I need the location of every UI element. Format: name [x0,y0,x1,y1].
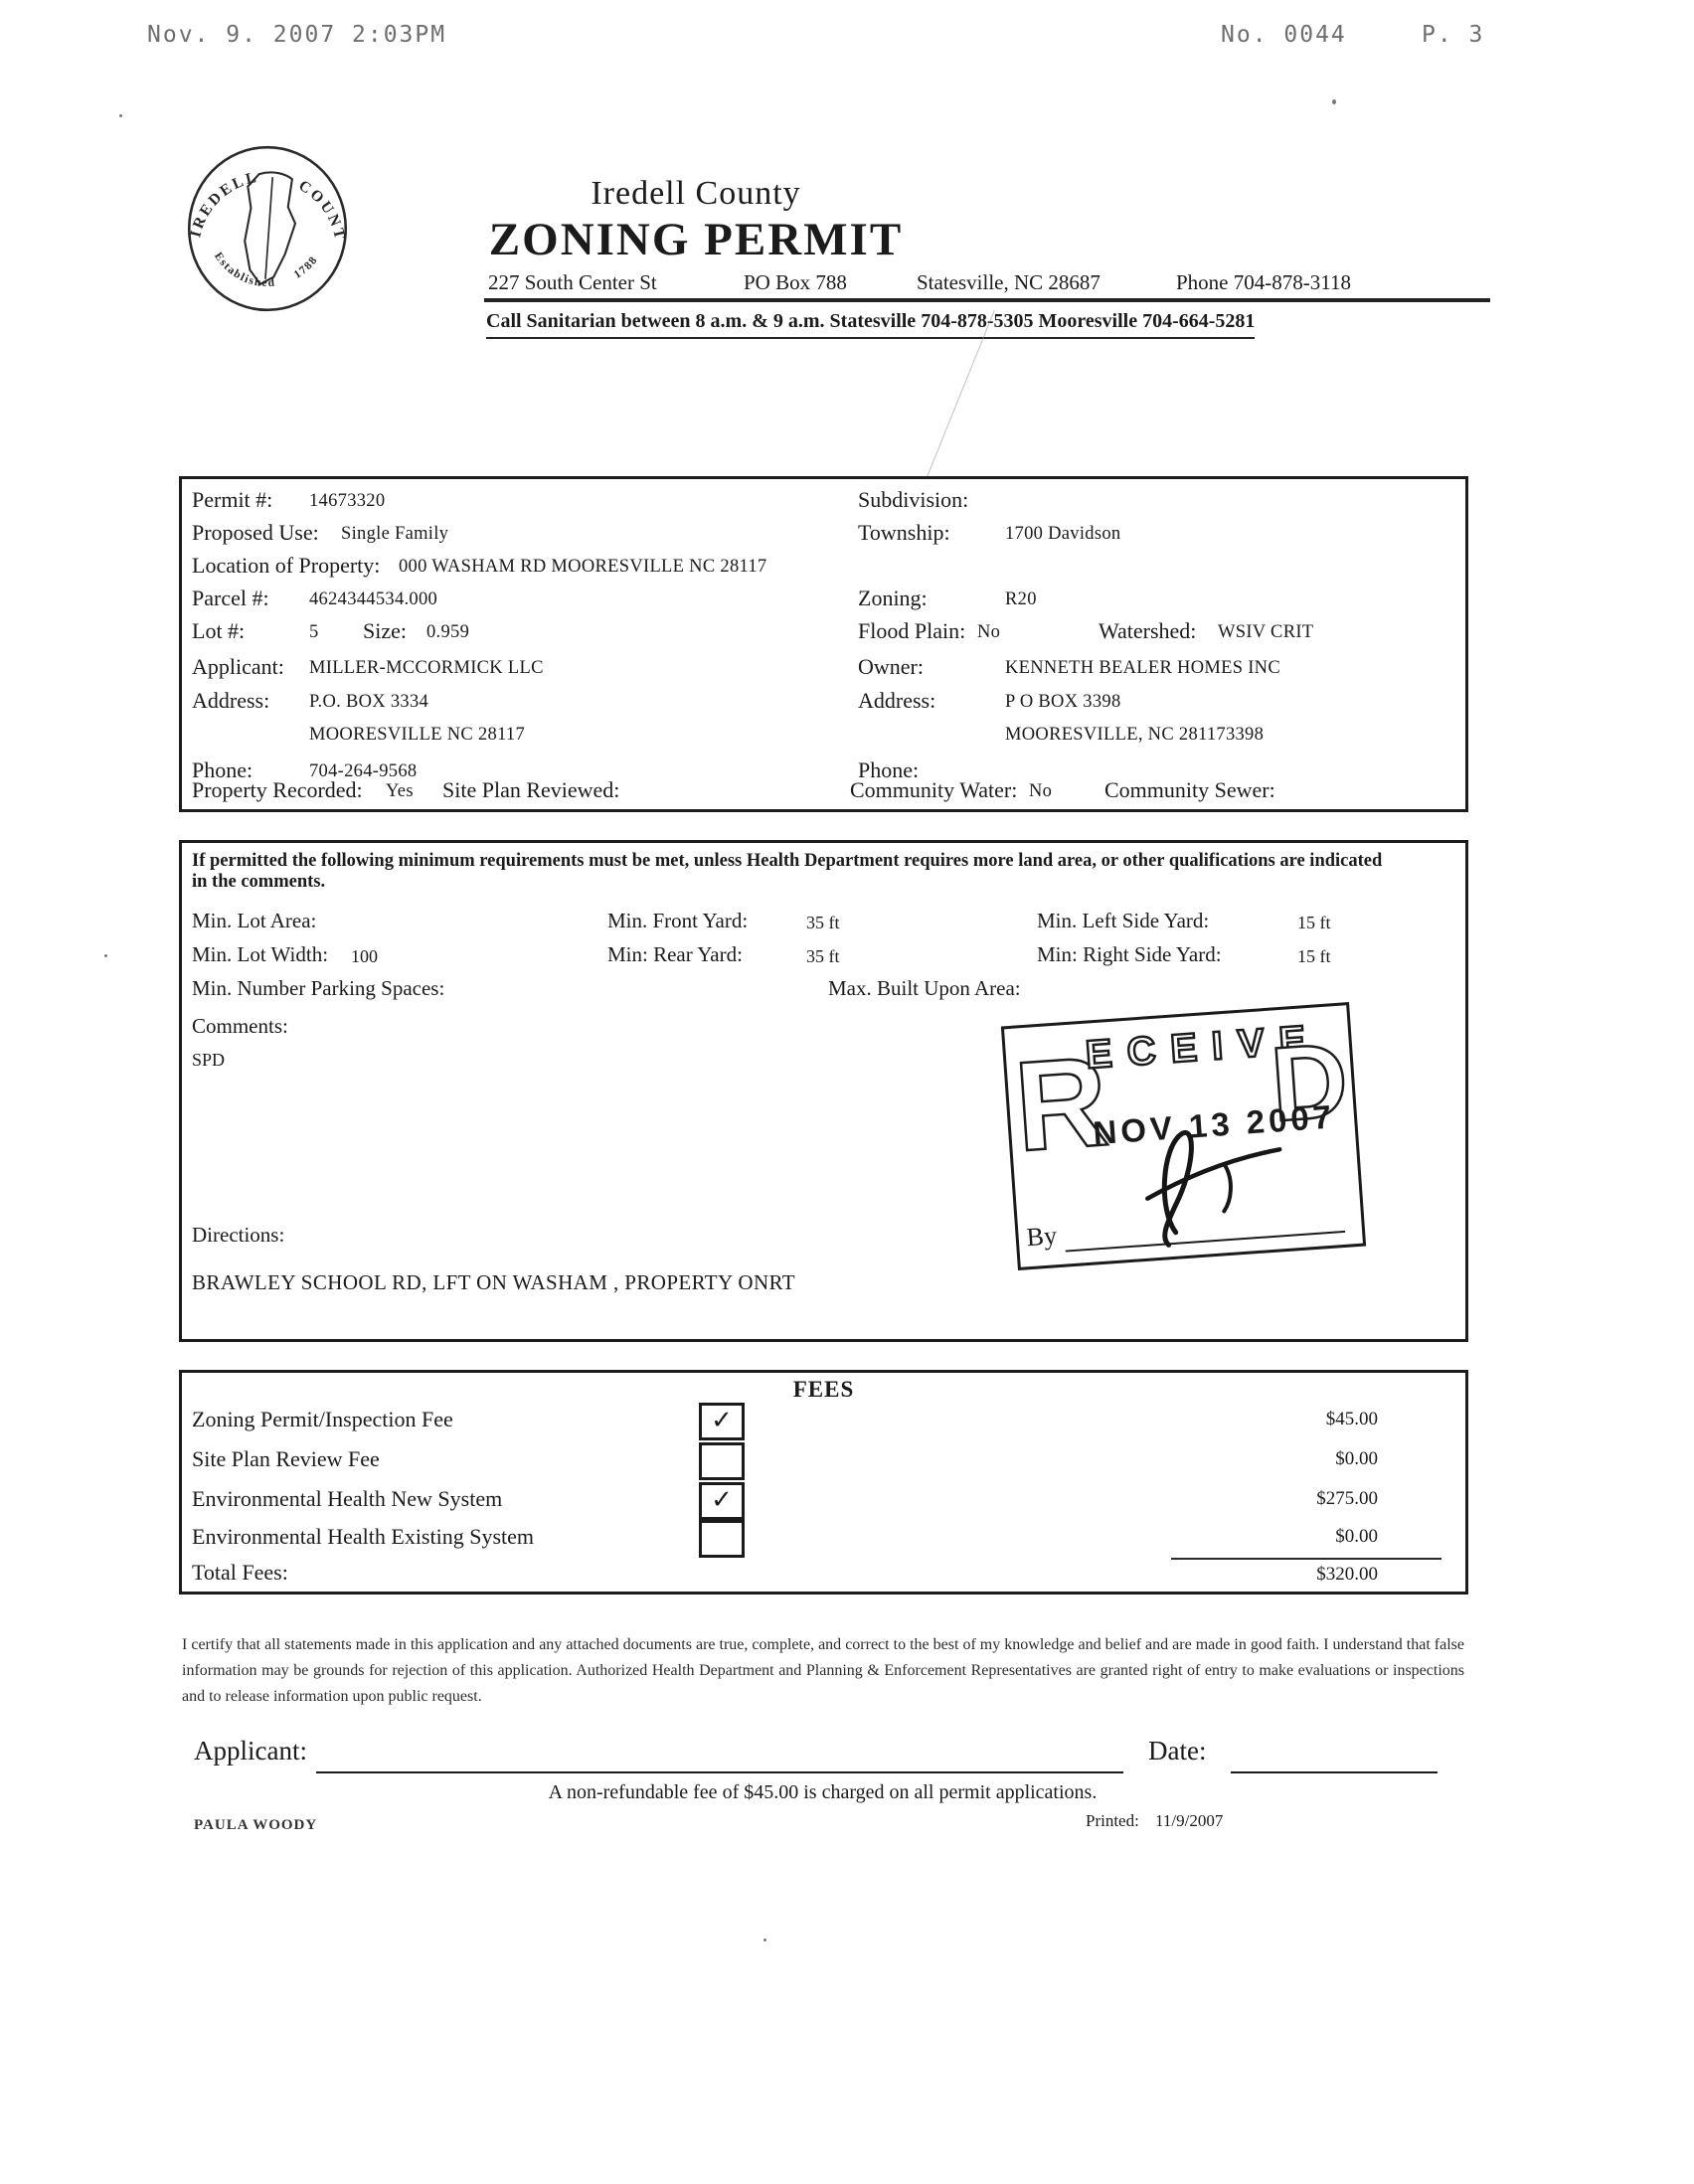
min-front-yard-label: Min. Front Yard: [607,909,748,933]
sanitarian-note: Call Sanitarian between 8 a.m. & 9 a.m. … [486,310,1255,339]
fees-total-divider [1171,1558,1441,1560]
size-label: Size: [363,618,407,644]
office-street: 227 South Center St [488,270,657,295]
office-po-box: PO Box 788 [744,270,847,295]
scan-speck [1332,99,1336,104]
min-rear-yard-value: 35 ft [806,946,840,967]
non-refundable-note: A non-refundable fee of $45.00 is charge… [179,1781,1466,1804]
fees-title: FEES [182,1377,1465,1403]
zoning-value: R20 [1005,589,1037,610]
applicant-label: Applicant: [192,654,284,680]
permit-number-label: Permit #: [192,487,272,513]
community-water-value: No [1029,781,1052,802]
zoning-permit-scan: Nov. 9. 2007 2:03PM No. 0044 P. 3 IREDEL… [0,0,1694,2184]
permit-number-value: 14673320 [309,491,385,512]
date-label: Date: [1148,1736,1206,1766]
community-water-label: Community Water: [850,777,1017,803]
lot-value: 5 [309,622,319,643]
scan-speck [104,954,107,957]
township-label: Township: [858,520,950,546]
zoning-label: Zoning: [858,586,928,611]
flood-plain-value: No [977,622,1000,643]
county-outline-icon [245,172,295,284]
watershed-value: WSIV CRIT [1218,622,1313,643]
office-city: Statesville, NC 28687 [917,270,1101,295]
seal-text-iredell: IREDELL [187,169,259,240]
proposed-use-value: Single Family [341,524,448,545]
applicant-address-line2: MOORESVILLE NC 28117 [309,725,525,746]
stamp-by-label: By [1026,1221,1058,1253]
fee-zoning-permit-label: Zoning Permit/Inspection Fee [192,1407,453,1432]
min-left-side-yard-label: Min. Left Side Yard: [1037,909,1209,933]
received-stamp: R ECEIVE D NOV 13 2007 By [1001,1002,1366,1270]
fee-env-existing-checkbox[interactable] [699,1520,745,1558]
township-value: 1700 Davidson [1005,524,1120,545]
fee-env-new-checkbox[interactable]: ✓ [699,1482,745,1520]
county-seal: IREDELL COUNTY Established 1788 [185,143,350,319]
fee-site-plan-amount: $0.00 [1219,1448,1378,1470]
comments-label: Comments: [192,1014,288,1039]
min-front-yard-value: 35 ft [806,913,840,933]
permit-summary-box: Permit #: 14673320 Subdivision: Proposed… [179,476,1468,812]
max-built-upon-label: Max. Built Upon Area: [828,976,1021,1001]
svg-text:1788: 1788 [292,253,320,281]
total-fees-amount: $320.00 [1219,1564,1378,1586]
certification-text: I certify that all statements made in th… [182,1632,1464,1710]
size-value: 0.959 [426,622,469,643]
requirements-intro: If permitted the following minimum requi… [192,851,1385,893]
min-parking-label: Min. Number Parking Spaces: [192,976,444,1001]
printed-date: 11/9/2007 [1155,1811,1223,1831]
parcel-label: Parcel #: [192,586,269,611]
applicant-signature-line[interactable] [316,1771,1123,1773]
site-plan-reviewed-label: Site Plan Reviewed: [442,777,619,803]
applicant-address-line1: P.O. BOX 3334 [309,692,428,713]
svg-text:IREDELL: IREDELL [187,169,259,240]
proposed-use-label: Proposed Use: [192,520,319,546]
fee-env-new-amount: $275.00 [1219,1488,1378,1510]
owner-address-line2: MOORESVILLE, NC 281173398 [1005,725,1264,746]
owner-label: Owner: [858,654,924,680]
min-left-side-yard-value: 15 ft [1297,913,1331,933]
fee-site-plan-checkbox[interactable] [699,1442,745,1480]
county-seal-graphic: IREDELL COUNTY Established 1788 [185,143,350,314]
directions-label: Directions: [192,1223,284,1248]
total-fees-label: Total Fees: [192,1560,288,1586]
fee-env-existing-amount: $0.00 [1219,1526,1378,1548]
property-recorded-value: Yes [386,781,414,802]
location-value: 000 WASHAM RD MOORESVILLE NC 28117 [399,557,766,578]
owner-value: KENNETH BEALER HOMES INC [1005,658,1280,679]
printed-label: Printed: [1086,1811,1139,1831]
fee-zoning-permit-checkbox[interactable]: ✓ [699,1403,745,1440]
stamp-signature [1129,1104,1307,1256]
min-right-side-yard-value: 15 ft [1297,946,1331,967]
directions-value: BRAWLEY SCHOOL RD, LFT ON WASHAM , PROPE… [192,1270,795,1295]
applicant-signature-label: Applicant: [194,1736,307,1766]
fee-env-existing-label: Environmental Health Existing System [192,1524,534,1550]
subdivision-label: Subdivision: [858,487,968,513]
owner-address-label: Address: [858,688,935,714]
applicant-address-label: Address: [192,688,269,714]
min-lot-area-label: Min. Lot Area: [192,909,316,933]
community-sewer-label: Community Sewer: [1104,777,1275,803]
property-recorded-label: Property Recorded: [192,777,363,803]
flood-plain-label: Flood Plain: [858,618,965,644]
county-name-title: Iredell County [388,175,1004,213]
fees-box: FEES Zoning Permit/Inspection Fee ✓ $45.… [179,1370,1468,1595]
requirements-box: If permitted the following minimum requi… [179,840,1468,1342]
watershed-label: Watershed: [1099,618,1196,644]
lot-label: Lot #: [192,618,245,644]
comments-value: SPD [192,1050,225,1071]
prepared-by: PAULA WOODY [194,1817,317,1834]
fee-env-new-label: Environmental Health New System [192,1486,502,1512]
owner-address-line1: P O BOX 3398 [1005,692,1121,713]
seal-text-1788: 1788 [292,253,320,281]
fax-datetime: Nov. 9. 2007 2:03PM [147,22,446,48]
parcel-value: 4624344534.000 [309,589,437,610]
min-lot-width-label: Min. Lot Width: [192,942,328,967]
min-lot-width-value: 100 [351,946,378,967]
fee-zoning-permit-amount: $45.00 [1219,1409,1378,1430]
scan-speck [763,1938,766,1941]
date-line[interactable] [1231,1771,1438,1773]
min-rear-yard-label: Min: Rear Yard: [607,942,743,967]
fax-page-number: P. 3 [1422,22,1484,48]
page-title: ZONING PERMIT [388,213,1004,266]
office-phone: Phone 704-878-3118 [1176,270,1351,295]
header-divider [484,298,1490,302]
location-label: Location of Property: [192,553,380,579]
scan-speck [119,114,122,117]
applicant-value: MILLER-MCCORMICK LLC [309,658,544,679]
min-right-side-yard-label: Min: Right Side Yard: [1037,942,1222,967]
fax-number: No. 0044 [1221,22,1347,48]
fee-site-plan-label: Site Plan Review Fee [192,1446,380,1472]
